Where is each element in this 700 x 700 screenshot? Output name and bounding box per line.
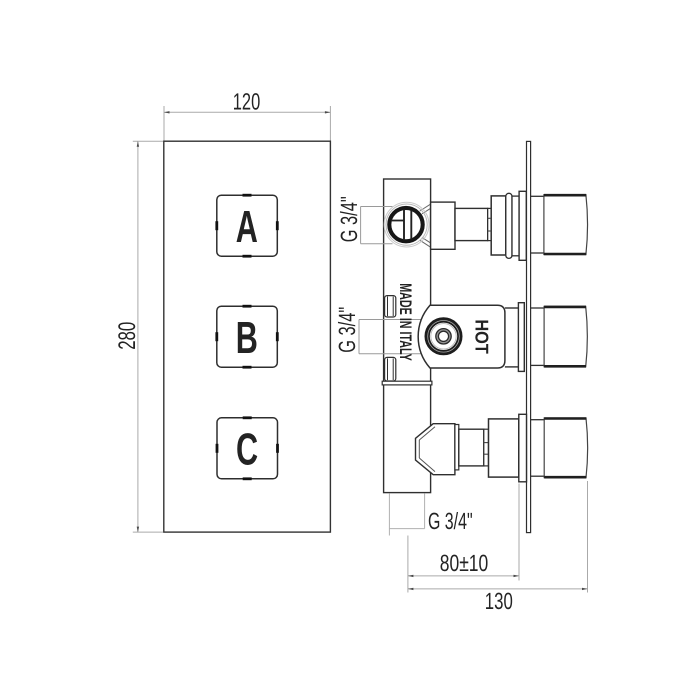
svg-text:280: 280	[114, 322, 141, 350]
svg-text:G 3/4": G 3/4"	[334, 307, 360, 353]
svg-text:G 3/4": G 3/4"	[428, 508, 473, 534]
svg-text:120: 120	[233, 89, 260, 115]
svg-text:G 3/4": G 3/4"	[336, 196, 362, 242]
svg-text:B: B	[236, 312, 258, 363]
svg-text:A: A	[236, 201, 258, 252]
svg-text:MADE IN ITALY: MADE IN ITALY	[396, 283, 415, 361]
svg-text:80±10: 80±10	[440, 550, 489, 576]
svg-text:130: 130	[485, 588, 513, 614]
svg-text:C: C	[236, 423, 258, 474]
svg-text:HOT: HOT	[471, 319, 492, 354]
